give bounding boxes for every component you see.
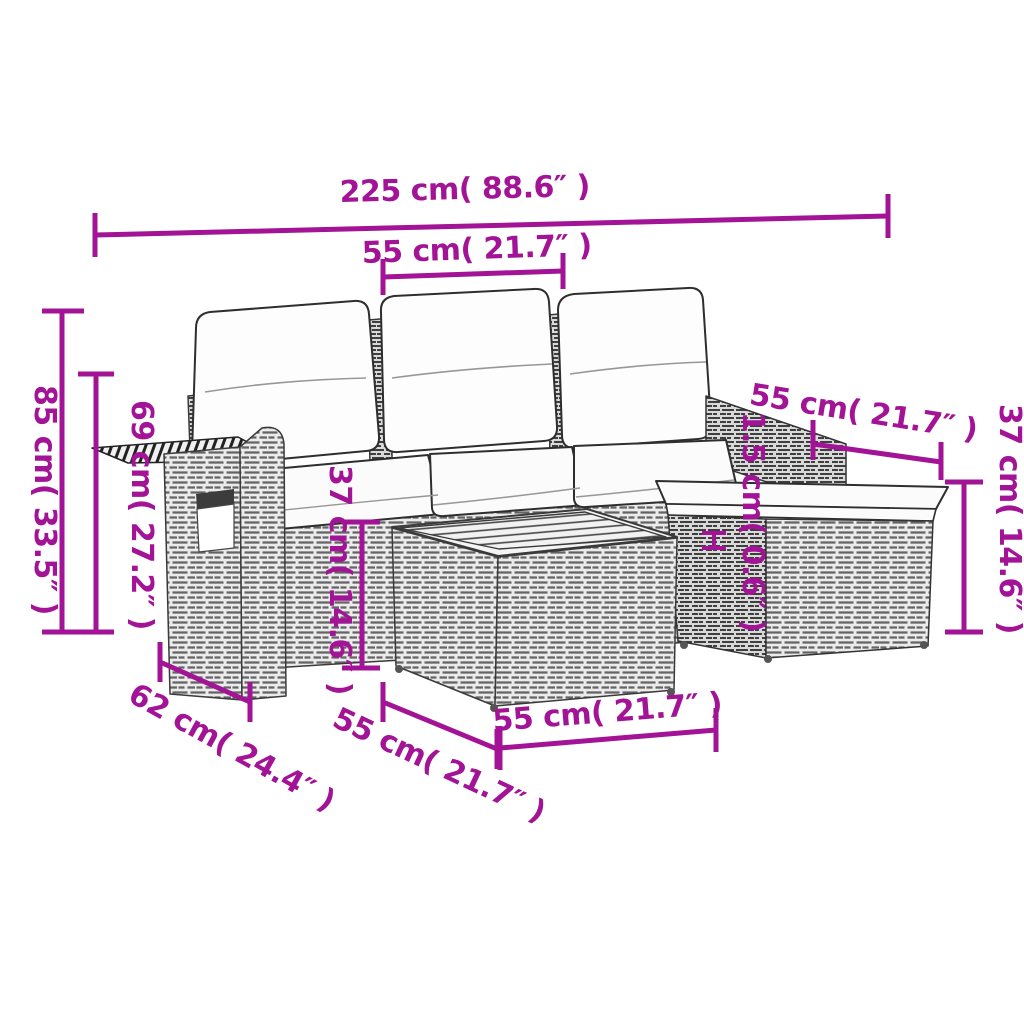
armrest-slot-opening	[197, 504, 234, 552]
dim-total-height-label: 85 cm( 33.5″ )	[27, 385, 62, 615]
armrest-corner	[240, 427, 286, 700]
seat-cushion-middle	[430, 447, 583, 516]
table-body-left-face	[392, 528, 498, 706]
product-dimension-image: 225 cm( 88.6″ ) 55 cm( 21.7″ ) 85 cm( 33…	[0, 0, 1024, 1024]
dim-cushion-thickness-label: 1.5 cm( 0.6″ )	[735, 412, 770, 633]
back-cushion-middle	[381, 289, 557, 452]
dim-total-width-label: 225 cm( 88.6″ )	[339, 169, 590, 210]
dimension-diagram-svg: 225 cm( 88.6″ ) 55 cm( 21.7″ ) 85 cm( 33…	[0, 0, 1024, 1024]
stool-foot-right	[920, 641, 928, 649]
stool-foot-front	[764, 655, 772, 663]
table-foot-left	[395, 665, 403, 673]
table-body-front-face	[495, 538, 677, 706]
stool-foot-left	[680, 641, 688, 649]
stool	[656, 481, 948, 663]
dim-seat-width: 55 cm( 21.7″ )	[361, 228, 592, 295]
dim-seat-width-label: 55 cm( 21.7″ )	[361, 228, 592, 271]
table	[392, 509, 677, 712]
dim-table-height-label: 37 cm( 14.6″ )	[322, 465, 357, 695]
dim-seat-width-line	[383, 271, 563, 277]
dim-stool-height-label: 37 cm( 14.6″ )	[992, 404, 1024, 634]
dim-armrest-height: 69 cm( 27.2″ )	[78, 374, 159, 632]
dim-total-height: 85 cm( 33.5″ )	[27, 311, 84, 632]
sofa-set-illustration	[92, 288, 948, 712]
stool-body-front-face	[766, 519, 933, 658]
back-cushion-right	[558, 288, 711, 448]
dim-armrest-height-label: 69 cm( 27.2″ )	[124, 400, 159, 630]
armrest-front	[164, 447, 242, 700]
